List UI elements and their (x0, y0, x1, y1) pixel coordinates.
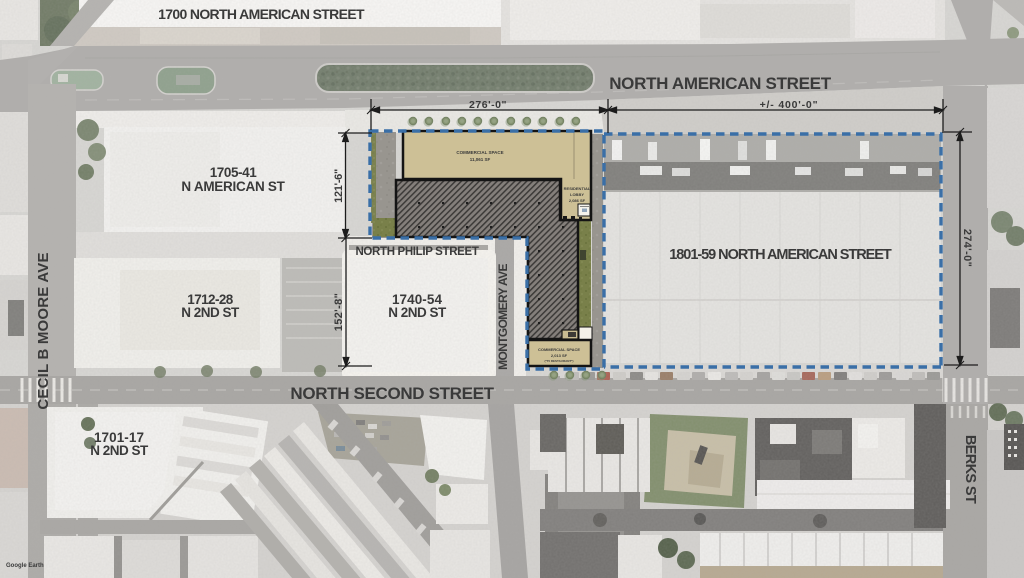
svg-text:MONTGOMERY AVE: MONTGOMERY AVE (496, 264, 510, 370)
svg-text:276'-0": 276'-0" (469, 99, 507, 111)
svg-text:N 2ND ST: N 2ND ST (388, 305, 447, 320)
svg-text:1801-59 NORTH AMERICAN STREET: 1801-59 NORTH AMERICAN STREET (669, 247, 892, 263)
svg-text:1700 NORTH AMERICAN STREET: 1700 NORTH AMERICAN STREET (158, 6, 365, 22)
svg-text:CECIL B MOORE AVE: CECIL B MOORE AVE (35, 252, 52, 409)
svg-text:+/- 400'-0": +/- 400'-0" (760, 99, 819, 111)
svg-text:(*75 RESTAURANT*): (*75 RESTAURANT*) (545, 359, 574, 363)
svg-text:BERKS ST: BERKS ST (962, 435, 978, 504)
svg-text:LOBBY: LOBBY (570, 192, 584, 197)
svg-text:Google Earth: Google Earth (6, 563, 44, 569)
svg-text:N AMERICAN ST: N AMERICAN ST (181, 179, 285, 194)
svg-text:N 2ND ST: N 2ND ST (90, 443, 149, 458)
svg-text:2,013 SF: 2,013 SF (551, 353, 568, 358)
svg-text:2,086 SF: 2,086 SF (569, 198, 586, 203)
svg-text:1705-41: 1705-41 (210, 165, 258, 180)
svg-text:11,061 SF: 11,061 SF (470, 157, 491, 162)
svg-text:N 2ND ST: N 2ND ST (181, 305, 240, 320)
svg-text:COMMERCIAL SPACE: COMMERCIAL SPACE (538, 347, 580, 352)
svg-text:RESIDENTIAL: RESIDENTIAL (564, 186, 591, 191)
svg-text:121'-6": 121'-6" (333, 169, 345, 203)
svg-text:NORTH AMERICAN STREET: NORTH AMERICAN STREET (609, 74, 832, 93)
svg-text:152'-8": 152'-8" (333, 293, 345, 331)
svg-text:274'-0": 274'-0" (961, 229, 973, 267)
svg-text:NORTH SECOND STREET: NORTH SECOND STREET (290, 384, 494, 403)
svg-text:NORTH PHILIP STREET: NORTH PHILIP STREET (355, 246, 478, 258)
svg-text:COMMERCIAL SPACE: COMMERCIAL SPACE (456, 150, 503, 155)
